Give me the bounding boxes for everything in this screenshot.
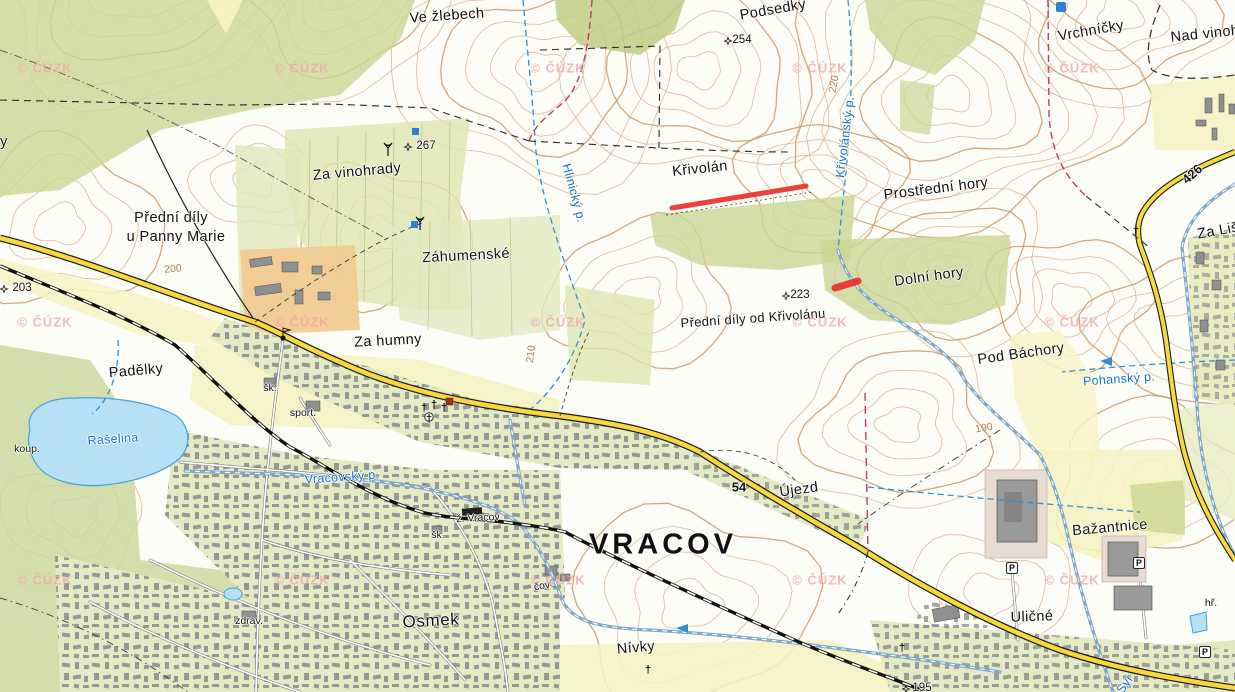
parking-icon: P bbox=[1007, 563, 1018, 574]
parking-icon: P bbox=[1134, 558, 1145, 569]
parking-icon: P bbox=[1200, 647, 1211, 658]
svg-text:P: P bbox=[1202, 647, 1208, 657]
reservoir-icon bbox=[1056, 2, 1066, 12]
topographic-map[interactable]: PPP Ve žlebechPodsedkyVrchníčkyNad vinoh… bbox=[0, 0, 1235, 692]
memorial-icon bbox=[446, 398, 453, 405]
railway-station bbox=[462, 507, 482, 515]
water-tank-icon bbox=[411, 221, 418, 228]
town-ring-icon bbox=[425, 413, 433, 421]
svg-text:P: P bbox=[1009, 563, 1015, 573]
svg-text:P: P bbox=[1136, 558, 1142, 568]
water-tank-icon bbox=[412, 128, 419, 135]
